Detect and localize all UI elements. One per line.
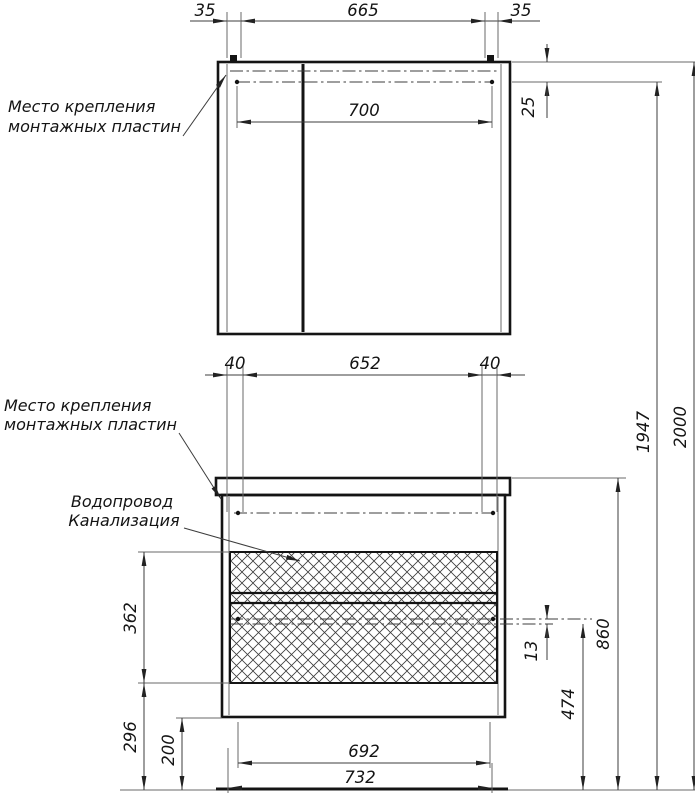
drawing-canvas: 35 665 35 700 25 40 652 40 13 bbox=[0, 0, 695, 795]
dim-rail-gap: 13 bbox=[522, 641, 541, 662]
dim-countertop-height: 860 bbox=[594, 618, 613, 650]
dim-mirror-offset-left: 35 bbox=[195, 1, 216, 20]
plumbing-label-line2: Канализация bbox=[68, 511, 180, 530]
mounting-point-dot bbox=[236, 511, 240, 515]
dim-overall-width: 732 bbox=[344, 768, 376, 787]
dim-rail-height: 474 bbox=[559, 688, 578, 720]
dim-cabinet-offset-left: 40 bbox=[225, 354, 246, 373]
dim-cabinet-plate-spacing: 652 bbox=[349, 354, 381, 373]
dim-mirror-offset-right: 35 bbox=[511, 1, 532, 20]
annotations: Место крепления монтажных пластин Место … bbox=[4, 75, 300, 561]
mounting-plate-right bbox=[487, 55, 494, 61]
rail-point-dot bbox=[236, 617, 240, 621]
mounting-point-dot bbox=[235, 80, 239, 84]
mounting-plates-label-top-line2: монтажных пластин bbox=[8, 117, 181, 136]
leader-line-mounting-bottom bbox=[179, 433, 221, 499]
installation-drawing: 35 665 35 700 25 40 652 40 13 bbox=[0, 0, 695, 795]
dim-mirror-plates-height: 1947 bbox=[634, 411, 653, 453]
mounting-plates-label-bottom-line2: монтажных пластин bbox=[4, 415, 177, 434]
dim-drawer-zone-height: 362 bbox=[121, 602, 140, 634]
countertop bbox=[216, 478, 510, 495]
mounting-point-dot bbox=[491, 511, 495, 515]
dim-cabinet-offset-right: 40 bbox=[480, 354, 501, 373]
dim-mirror-plate-spacing: 665 bbox=[347, 1, 379, 20]
dim-drawer-width: 692 bbox=[348, 742, 380, 761]
dim-leg-clearance: 200 bbox=[159, 734, 178, 766]
drawer-fronts-hatched bbox=[230, 552, 497, 683]
mounting-plates-label-bottom-line1: Место крепления bbox=[4, 396, 152, 415]
rail-point-dot bbox=[491, 617, 495, 621]
mounting-plate-left bbox=[230, 55, 237, 61]
dim-bottom-zone-height: 296 bbox=[121, 721, 140, 753]
plumbing-label-line1: Водопровод bbox=[71, 492, 173, 511]
mounting-point-dot bbox=[490, 80, 494, 84]
leader-line-mounting-top bbox=[183, 75, 226, 136]
mirror-cabinet-front-view bbox=[218, 55, 510, 334]
mounting-plates-label-top-line1: Место крепления bbox=[8, 97, 156, 116]
dim-mirror-inner-width: 700 bbox=[348, 101, 380, 120]
dim-mirror-top-offset: 25 bbox=[519, 97, 538, 118]
dim-overall-height: 2000 bbox=[671, 406, 690, 448]
